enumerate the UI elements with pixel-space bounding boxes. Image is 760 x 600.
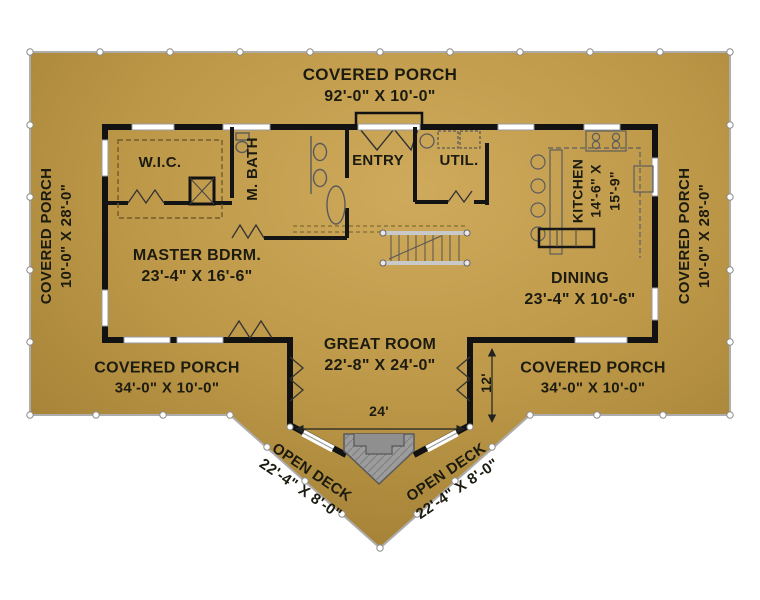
floor-plan: COVERED PORCH 92'-0" X 10'-0" COVERED PO… <box>0 0 760 600</box>
floor-plan-drawing <box>0 0 760 600</box>
